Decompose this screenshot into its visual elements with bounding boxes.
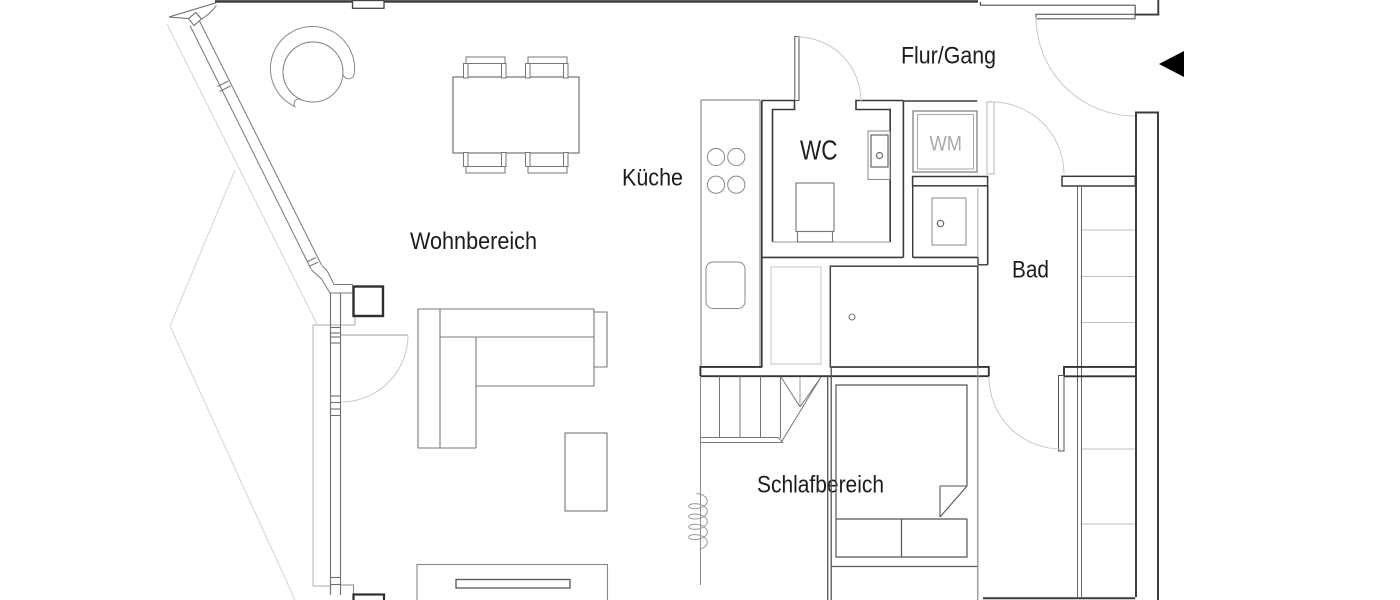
svg-text:Flur/Gang: Flur/Gang xyxy=(901,43,996,70)
svg-text:WM: WM xyxy=(930,132,963,156)
svg-text:WC: WC xyxy=(800,135,838,166)
svg-text:Bad: Bad xyxy=(1012,257,1049,284)
svg-text:Wohnbereich: Wohnbereich xyxy=(410,228,537,255)
svg-text:Schlafbereich: Schlafbereich xyxy=(757,472,884,499)
svg-text:Küche: Küche xyxy=(622,165,683,192)
